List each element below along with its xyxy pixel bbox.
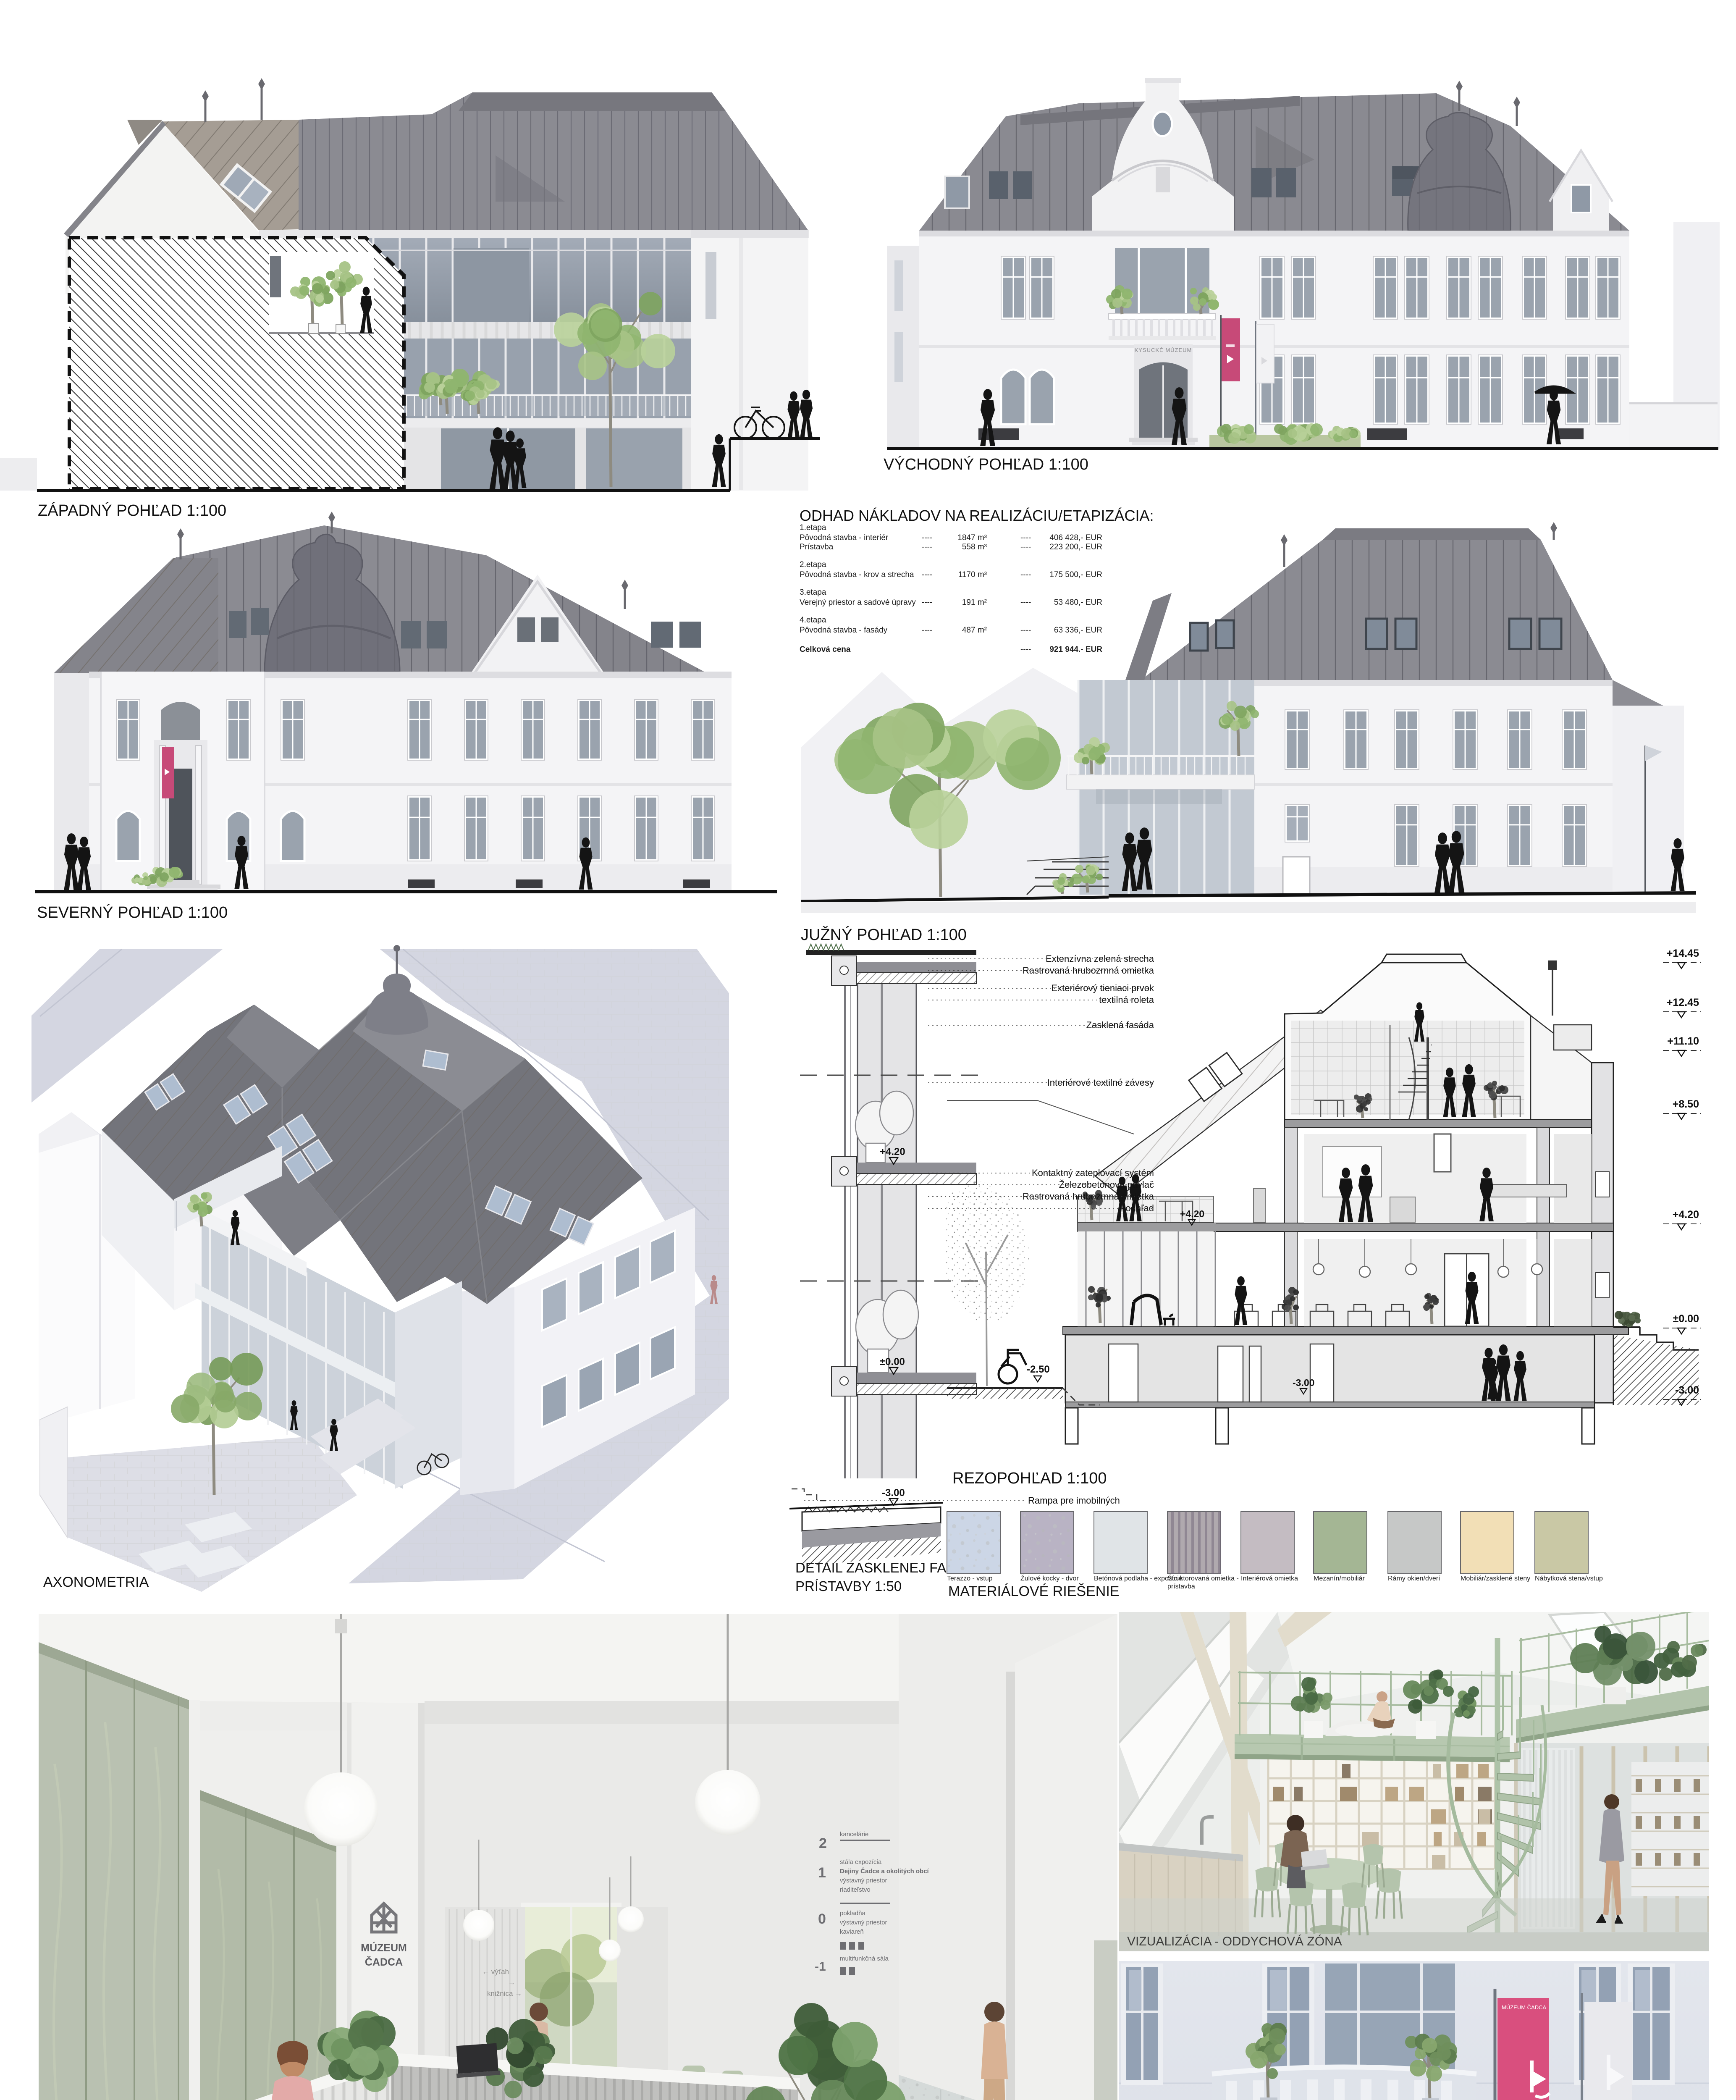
svg-text:ZÁPADNÝ POHĽAD 1:100: ZÁPADNÝ POHĽAD 1:100	[38, 501, 226, 520]
svg-text:Rámy okien/dverí: Rámy okien/dverí	[1388, 1575, 1440, 1582]
svg-text:KYSUCKÉ MÚZEUM: KYSUCKÉ MÚZEUM	[1135, 347, 1192, 353]
svg-text:Dejiny Čadce a okolitých obcí: Dejiny Čadce a okolitých obcí	[840, 1867, 929, 1875]
svg-text:riaditeľstvo: riaditeľstvo	[840, 1886, 871, 1893]
svg-text:VIZUALIZÁCIA - ODDYCHOVÁ ZÓNA: VIZUALIZÁCIA - ODDYCHOVÁ ZÓNA	[1127, 1935, 1342, 1948]
svg-text:Verejný priestor a sadové úpra: Verejný priestor a sadové úpravy	[800, 598, 916, 607]
svg-text:175 500,- EUR: 175 500,- EUR	[1049, 570, 1102, 579]
svg-text:Rampa pre imobilných: Rampa pre imobilných	[1028, 1495, 1120, 1506]
svg-text:Mobiliár/zasklené steny: Mobiliár/zasklené steny	[1461, 1575, 1530, 1582]
svg-text:PRÍSTAVBY 1:50: PRÍSTAVBY 1:50	[795, 1578, 902, 1594]
svg-text:Pôvodná stavba - krov a strech: Pôvodná stavba - krov a strecha	[800, 570, 914, 579]
svg-text:406 428,- EUR: 406 428,- EUR	[1049, 533, 1102, 542]
svg-text:1170 m³: 1170 m³	[958, 570, 987, 579]
svg-text:knižnica →: knižnica →	[487, 1990, 522, 1998]
svg-text:----: ----	[922, 626, 932, 635]
svg-text:REZOPOHĽAD 1:100: REZOPOHĽAD 1:100	[952, 1470, 1107, 1487]
svg-text:+8.50: +8.50	[1673, 1098, 1699, 1110]
svg-text:JUŽNÝ POHĽAD 1:100: JUŽNÝ POHĽAD 1:100	[801, 926, 967, 944]
svg-text:MÚZEUM: MÚZEUM	[361, 1941, 407, 1954]
svg-text:2: 2	[819, 1835, 827, 1851]
svg-text:4.etapa: 4.etapa	[800, 616, 826, 625]
svg-text:Žulové kocky - dvor: Žulové kocky - dvor	[1020, 1574, 1079, 1582]
svg-text:výstavný priestor: výstavný priestor	[840, 1919, 887, 1926]
svg-text:+11.10: +11.10	[1667, 1035, 1699, 1047]
svg-text:----: ----	[1020, 543, 1031, 551]
svg-text:Celková cena: Celková cena	[800, 645, 851, 654]
svg-text:558 m³: 558 m³	[962, 543, 987, 551]
svg-text:Štruktorovaná omietka -: Štruktorovaná omietka -	[1167, 1574, 1239, 1582]
svg-text:2.etapa: 2.etapa	[800, 560, 826, 569]
svg-text:Podhľad: Podhľad	[1120, 1203, 1154, 1213]
svg-text:multifunkčná sála: multifunkčná sála	[840, 1955, 889, 1962]
svg-text:AXONOMETRIA: AXONOMETRIA	[43, 1574, 149, 1590]
svg-text:-2.50: -2.50	[1027, 1364, 1050, 1375]
svg-text:3.etapa: 3.etapa	[800, 588, 826, 597]
svg-text:53 480,- EUR: 53 480,- EUR	[1054, 598, 1102, 607]
svg-text:0: 0	[818, 1911, 826, 1927]
svg-text:← výťah: ← výťah	[482, 1968, 509, 1976]
svg-text:Nábytková stena/vstup: Nábytková stena/vstup	[1535, 1575, 1603, 1582]
svg-text:-3.00: -3.00	[882, 1487, 905, 1499]
svg-text:+4.20: +4.20	[1180, 1208, 1204, 1219]
svg-text:-3.00: -3.00	[1675, 1384, 1699, 1396]
svg-text:ODHAD NÁKLADOV NA REALIZÁCIU/E: ODHAD NÁKLADOV NA REALIZÁCIU/ETAPIZÁCIA:	[800, 507, 1154, 524]
svg-text:Pôvodná stavba - fasády: Pôvodná stavba - fasády	[800, 626, 888, 635]
svg-text:223 200,- EUR: 223 200,- EUR	[1049, 543, 1102, 551]
svg-text:1847 m³: 1847 m³	[957, 533, 987, 542]
svg-text:Extenzívna zelená strecha: Extenzívna zelená strecha	[1046, 953, 1154, 964]
svg-text:----: ----	[922, 570, 932, 579]
svg-text:+14.45: +14.45	[1667, 948, 1699, 959]
svg-text:ČADCA: ČADCA	[365, 1956, 403, 1968]
svg-text:±0.00: ±0.00	[1673, 1313, 1699, 1325]
svg-text:----: ----	[1020, 570, 1031, 579]
svg-text:SEVERNÝ POHĽAD 1:100: SEVERNÝ POHĽAD 1:100	[37, 903, 228, 921]
svg-text:Pôvodná stavba - interiér: Pôvodná stavba - interiér	[800, 533, 889, 542]
svg-text:-3.00: -3.00	[1293, 1377, 1314, 1388]
svg-text:+4.20: +4.20	[1673, 1209, 1699, 1221]
svg-text:kancelárie: kancelárie	[840, 1831, 868, 1838]
svg-text:----: ----	[1020, 626, 1031, 635]
svg-text:----: ----	[1020, 533, 1031, 542]
svg-text:1: 1	[818, 1865, 826, 1881]
svg-text:pokladňa: pokladňa	[840, 1910, 866, 1917]
svg-text:prístavba: prístavba	[1167, 1583, 1195, 1590]
svg-text:1.etapa: 1.etapa	[800, 523, 826, 532]
svg-text:Prístavba: Prístavba	[800, 543, 834, 551]
svg-text:Železobetónová pavlač: Železobetónová pavlač	[1059, 1179, 1154, 1190]
svg-text:191 m²: 191 m²	[962, 598, 987, 607]
svg-text:921 944.- EUR: 921 944.- EUR	[1049, 645, 1102, 654]
svg-text:----: ----	[1020, 645, 1031, 654]
svg-text:----: ----	[922, 533, 932, 542]
svg-text:+12.45: +12.45	[1667, 997, 1699, 1008]
svg-text:výstavný priestor: výstavný priestor	[840, 1877, 887, 1884]
svg-text:→: →	[508, 1979, 515, 1987]
svg-text:+4.20: +4.20	[880, 1146, 905, 1158]
svg-text:VÝCHODNÝ POHĽAD 1:100: VÝCHODNÝ POHĽAD 1:100	[884, 455, 1088, 473]
svg-text:Interiérová omietka: Interiérová omietka	[1241, 1575, 1298, 1582]
svg-text:Terazzo - vstup: Terazzo - vstup	[947, 1575, 993, 1582]
svg-text:----: ----	[922, 598, 932, 607]
svg-text:Mezanín/mobiliár: Mezanín/mobiliár	[1314, 1575, 1365, 1582]
svg-text:MATERIÁLOVÉ RIEŠENIE: MATERIÁLOVÉ RIEŠENIE	[948, 1583, 1119, 1599]
svg-text:63 336,- EUR: 63 336,- EUR	[1054, 626, 1102, 635]
svg-text:kaviareň: kaviareň	[840, 1928, 864, 1935]
svg-text:-1: -1	[815, 1960, 826, 1974]
svg-text:±0.00: ±0.00	[880, 1356, 905, 1368]
svg-text:----: ----	[922, 543, 932, 551]
svg-text:487 m²: 487 m²	[962, 626, 987, 635]
svg-text:MÚZEUM ČADCA: MÚZEUM ČADCA	[1502, 2004, 1546, 2011]
svg-text:----: ----	[1020, 598, 1031, 607]
svg-text:stála expozícia: stála expozícia	[840, 1858, 882, 1866]
